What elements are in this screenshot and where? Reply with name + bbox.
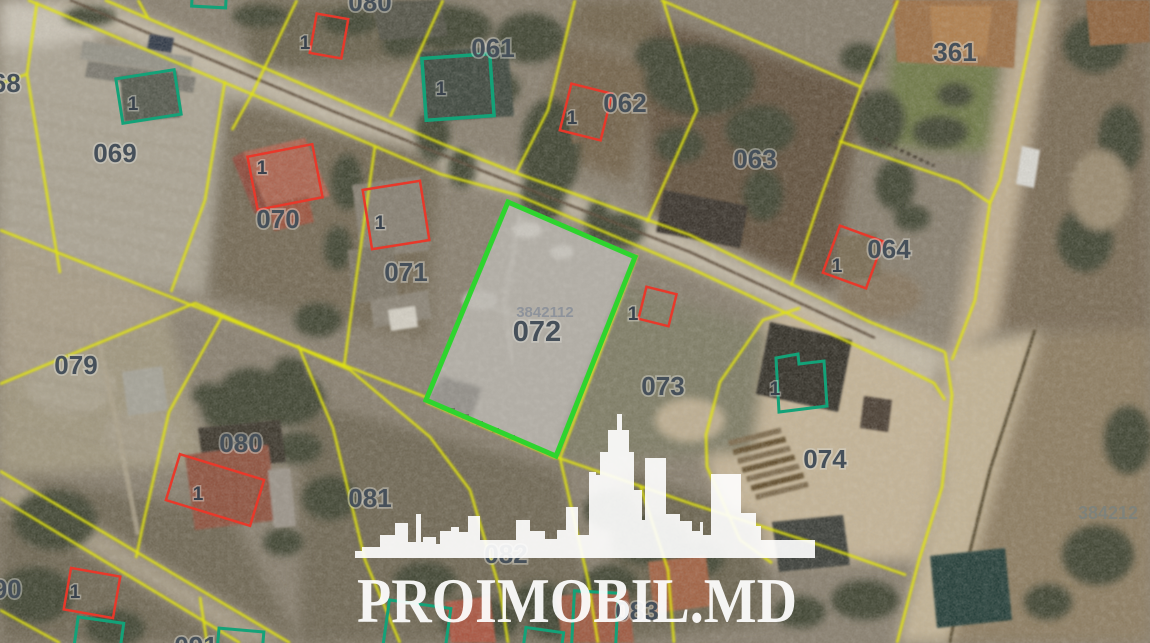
svg-text:384212: 384212 — [1078, 503, 1138, 523]
svg-text:1: 1 — [628, 304, 639, 325]
svg-text:063: 063 — [733, 144, 776, 174]
svg-text:073: 073 — [641, 371, 684, 401]
svg-text:1: 1 — [128, 94, 139, 115]
svg-text:071: 071 — [384, 257, 427, 287]
svg-text:080: 080 — [348, 0, 391, 17]
svg-text:070: 070 — [256, 204, 299, 234]
svg-text:1: 1 — [257, 158, 268, 179]
svg-text:1: 1 — [375, 213, 386, 234]
svg-text:1: 1 — [436, 79, 447, 100]
svg-text:091: 091 — [174, 631, 217, 643]
svg-text:081: 081 — [348, 483, 391, 513]
svg-text:1: 1 — [300, 33, 311, 54]
svg-text:3842112: 3842112 — [516, 304, 574, 321]
svg-text:1: 1 — [567, 108, 578, 129]
svg-text:PROIMOBIL.MD: PROIMOBIL.MD — [357, 566, 797, 636]
svg-text:090: 090 — [0, 574, 22, 604]
svg-text:062: 062 — [603, 88, 646, 118]
svg-text:074: 074 — [803, 444, 847, 474]
svg-text:069: 069 — [93, 138, 136, 168]
svg-text:061: 061 — [471, 33, 514, 63]
svg-text:361: 361 — [933, 37, 976, 67]
svg-text:068: 068 — [0, 68, 21, 98]
svg-text:1: 1 — [770, 379, 781, 400]
svg-text:1: 1 — [193, 484, 204, 505]
svg-text:1: 1 — [70, 582, 81, 603]
svg-text:1: 1 — [832, 256, 843, 277]
svg-text:064: 064 — [867, 234, 911, 264]
svg-text:080: 080 — [219, 428, 262, 458]
svg-text:079: 079 — [54, 350, 97, 380]
